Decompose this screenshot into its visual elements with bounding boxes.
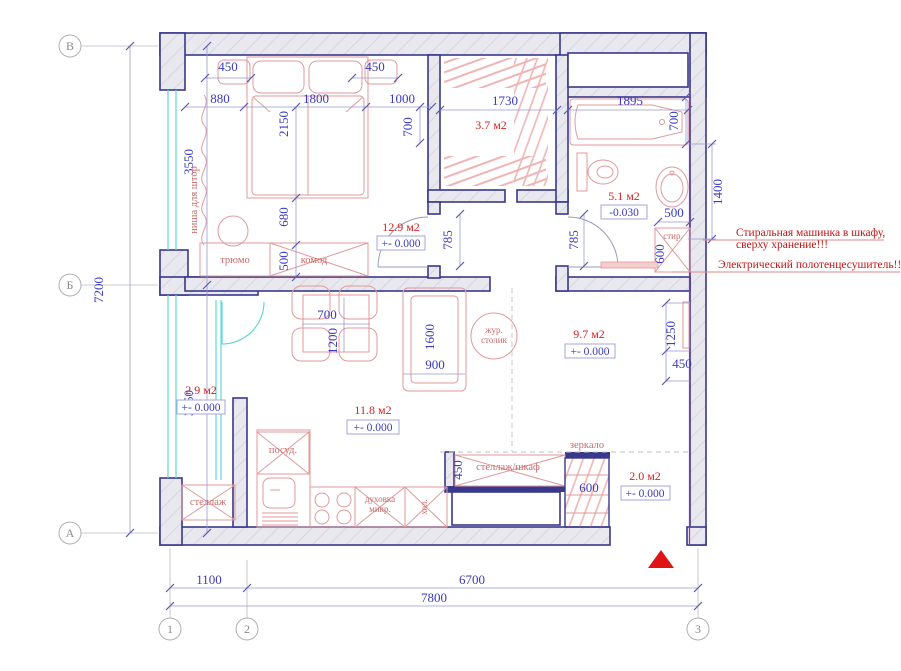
- living-area-label: 11.8 м2: [354, 403, 391, 417]
- balcony-door-arc: [222, 302, 264, 344]
- dim-1250-tv: 1250: [663, 321, 678, 347]
- dim-1600-sofa: 1600: [422, 324, 437, 350]
- dim-1730: 1730: [492, 93, 518, 108]
- wardrobe-rail-right: [514, 58, 548, 186]
- axis-col-3-label: 3: [695, 622, 701, 636]
- floor-plan-drawing: 450 450 880 1800 1000 2150 700 1730 1895…: [0, 0, 901, 671]
- tryumo-label: трюмо: [220, 255, 250, 266]
- floor-plan-canvas: 450 450 880 1800 1000 2150 700 1730 1895…: [0, 0, 901, 671]
- oven-label-2: микр.: [369, 504, 391, 514]
- door-jamb-bedroom-bottom: [428, 266, 440, 278]
- bathtub-drain: [660, 120, 665, 125]
- entry-wardrobe-top-edge: [565, 452, 610, 458]
- washer-note-line-1: Стиральная машинка в шкафу,: [736, 227, 885, 239]
- wall-wardrobe-bottom-a: [428, 190, 505, 202]
- bedroom-area-label: 12.9 м2: [382, 220, 420, 234]
- washer-label: стир.: [663, 231, 683, 241]
- komod-label: комод: [301, 255, 328, 266]
- hall-area-label: 9.7 м2: [573, 327, 605, 341]
- dim-1800: 1800: [303, 91, 329, 106]
- loggia-level: +- 0.000: [181, 402, 220, 414]
- wardrobe-area-label: 3.7 м2: [475, 118, 507, 132]
- dim-900-sofa: 900: [425, 357, 445, 372]
- dim-785-bedroom-door: 785: [440, 230, 455, 250]
- dim-600-entry: 600: [579, 480, 599, 495]
- dim-500-sink: 500: [664, 205, 684, 220]
- axis-col-1-label: 1: [167, 622, 173, 636]
- dimension-texts: 450 450 880 1800 1000 2150 700 1730 1895…: [91, 59, 725, 605]
- oven-label-1: духовка: [365, 494, 395, 504]
- entry-level: +- 0.000: [625, 488, 664, 500]
- dim-700-bath: 700: [666, 111, 681, 131]
- pillow-left: [253, 61, 304, 93]
- dim-600-washer: 600: [652, 244, 667, 264]
- entrance-arrow: [648, 550, 674, 568]
- dim-450-shelf: 450: [450, 460, 465, 480]
- chair-4: [339, 328, 377, 361]
- counter-front-edge: [445, 486, 565, 492]
- living-level: +- 0.000: [353, 422, 392, 434]
- dim-nightstand-right: 450: [365, 59, 385, 74]
- fridge-label: хол.: [419, 499, 429, 514]
- mirror-label: зеркало: [570, 440, 604, 451]
- wall-pier-bottom-left: [160, 478, 182, 545]
- zone-dashes: [440, 288, 688, 452]
- curtain-squiggle: [202, 95, 207, 245]
- dim-700-table: 700: [317, 307, 337, 322]
- wall-wardrobe-left: [428, 55, 440, 202]
- wall-bathroom-left: [556, 55, 568, 202]
- dim-680: 680: [276, 207, 291, 227]
- burner-3: [315, 510, 329, 524]
- dimension-lines: [126, 42, 716, 610]
- dim-nightstand-left: 450: [218, 59, 238, 74]
- burner-4: [337, 510, 351, 524]
- dim-7800: 7800: [421, 590, 447, 605]
- coffee-table-label-2: столик: [481, 335, 507, 345]
- towel-rail: [601, 262, 658, 268]
- kitchen-sink: [263, 478, 295, 508]
- curtain-niche-label: ниша для штор: [189, 166, 200, 234]
- pillow-right: [309, 61, 362, 93]
- dim-1895: 1895: [617, 93, 643, 108]
- wall-bedroom-living: [185, 277, 490, 291]
- axis-col-2-label: 2: [244, 622, 250, 636]
- dishwasher-label: посуд.: [269, 445, 297, 456]
- hall-bench: [452, 492, 560, 525]
- hall-level: +- 0.000: [570, 346, 609, 358]
- toilet-tank: [577, 153, 587, 191]
- niche-top-right: [568, 53, 688, 87]
- tryumo-mirror: [218, 216, 248, 246]
- bedroom-level: +- 0.000: [381, 238, 420, 250]
- dim-7200: 7200: [91, 277, 106, 303]
- axis-row-a-label: А: [66, 526, 75, 540]
- wall-pier-top-left: [160, 33, 185, 90]
- dim-785-bathroom-door: 785: [566, 230, 581, 250]
- hall-shelf-label: стеллаж/шкаф: [476, 462, 540, 473]
- tv-unit: [683, 302, 689, 348]
- bathroom-level: -0.030: [609, 207, 639, 219]
- dim-6700: 6700: [459, 572, 485, 587]
- loggia-area-label: 2.9 м2: [185, 383, 217, 397]
- dim-1400: 1400: [710, 179, 725, 205]
- coffee-table-label-1: жур.: [484, 325, 502, 335]
- dim-450-tv: 450: [672, 356, 692, 371]
- burner-2: [337, 493, 351, 507]
- wall-right: [690, 33, 706, 545]
- dim-1000: 1000: [389, 91, 415, 106]
- dim-2150: 2150: [276, 111, 291, 137]
- dim-1200-table: 1200: [325, 328, 340, 354]
- wall-bottom-left: [160, 527, 610, 545]
- washer-note-line-2: сверху хранение!!!: [736, 239, 828, 251]
- dim-700-door: 700: [400, 117, 415, 137]
- axis-row-v-label: В: [66, 39, 74, 53]
- dim-500-komod: 500: [276, 251, 291, 271]
- bathroom-area-label: 5.1 м2: [608, 189, 640, 203]
- door-jamb-bedroom-top: [428, 202, 440, 214]
- loggia-shelf-label: стеллаж: [190, 497, 227, 508]
- dim-880: 880: [210, 91, 230, 106]
- wall-bathroom-bottom: [556, 277, 690, 291]
- axis-row-b-label: Б: [67, 278, 74, 292]
- burner-1: [315, 493, 329, 507]
- door-jamb-bathroom-top: [556, 202, 568, 214]
- towel-note: Электрический полотенцесушитель!!!: [718, 259, 901, 271]
- dim-1100: 1100: [196, 572, 222, 587]
- axis-bubbles: В Б А 1 2 3: [59, 35, 709, 640]
- entry-area-label: 2.0 м2: [629, 469, 661, 483]
- door-jamb-bathroom-bottom: [556, 266, 568, 291]
